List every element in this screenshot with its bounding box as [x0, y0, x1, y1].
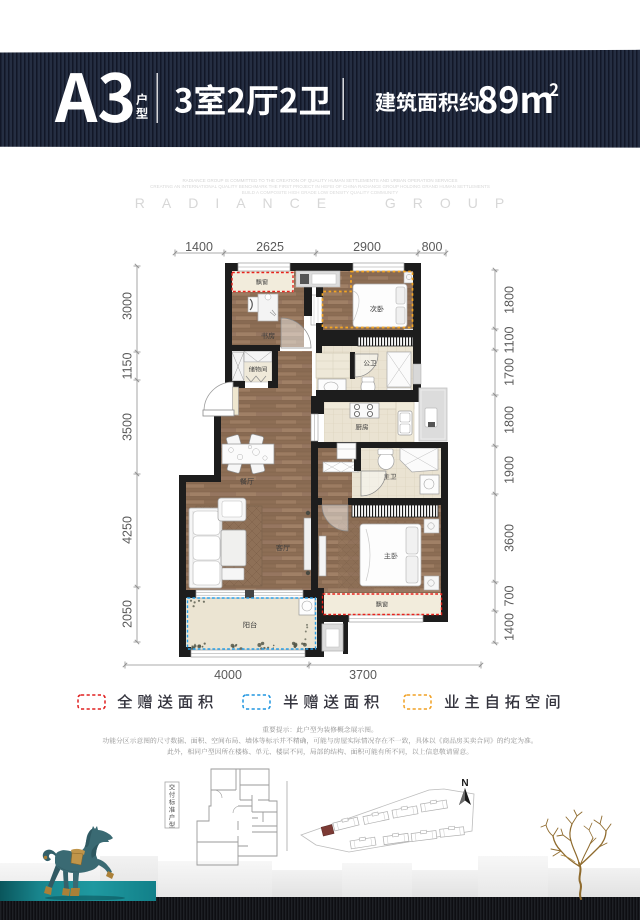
svg-text:3500: 3500 [120, 413, 134, 441]
svg-text:3000: 3000 [120, 292, 134, 320]
svg-text:800: 800 [422, 240, 443, 254]
svg-text:4250: 4250 [120, 516, 134, 544]
svg-text:1900: 1900 [502, 456, 516, 484]
svg-text:2050: 2050 [120, 600, 134, 628]
svg-text:1150: 1150 [120, 353, 134, 380]
svg-text:2625: 2625 [256, 240, 284, 254]
svg-text:1800: 1800 [502, 286, 516, 314]
svg-text:1400: 1400 [502, 613, 516, 641]
svg-text:2900: 2900 [353, 240, 381, 254]
svg-text:1400: 1400 [185, 240, 213, 254]
svg-text:1800: 1800 [502, 406, 516, 434]
svg-text:CREATING AN INTERNATIONAL QUAL: CREATING AN INTERNATIONAL QUALITY BENCHM… [150, 184, 490, 189]
svg-text:1100: 1100 [502, 327, 516, 354]
svg-text:RADIANCE GROUP IS COMMITTED TO: RADIANCE GROUP IS COMMITTED TO THE CREAT… [182, 178, 457, 183]
svg-text:1700: 1700 [502, 358, 516, 386]
svg-text:3600: 3600 [502, 524, 516, 552]
svg-text:N: N [461, 778, 468, 789]
svg-text:4000: 4000 [214, 668, 242, 682]
svg-text:700: 700 [502, 586, 516, 607]
svg-text:3700: 3700 [349, 668, 377, 682]
svg-text:RADIANCE GROUP: RADIANCE GROUP [135, 195, 521, 211]
